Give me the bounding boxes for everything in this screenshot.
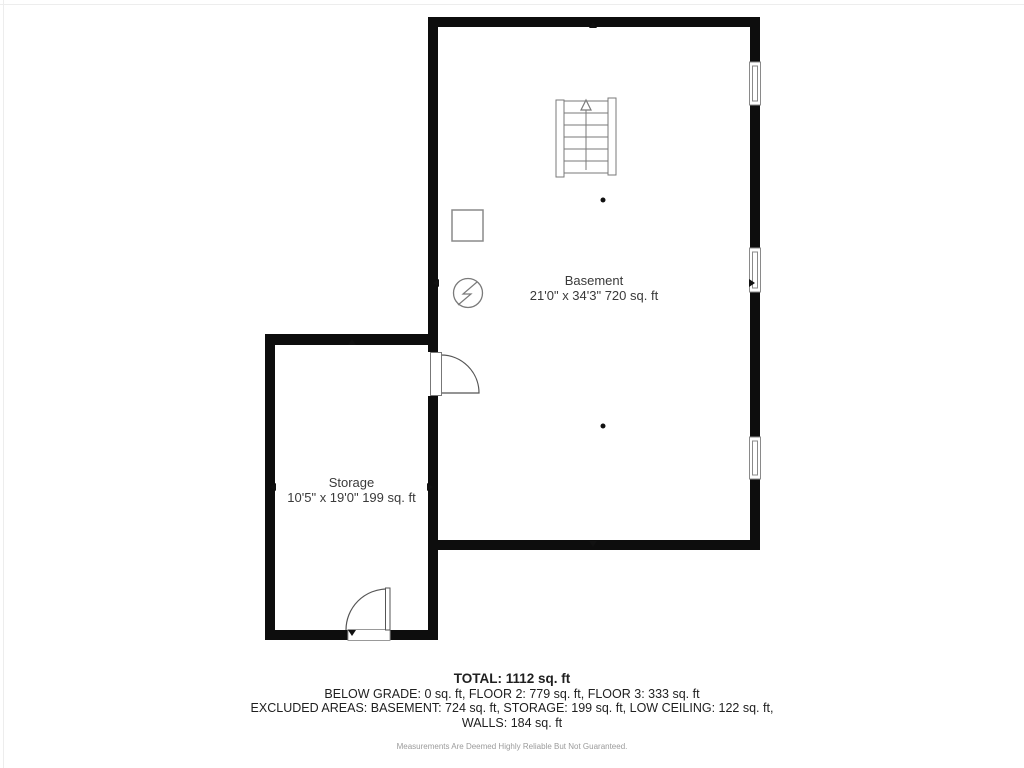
summary-line: BELOW GRADE: 0 sq. ft, FLOOR 2: 779 sq. … [0,687,1024,702]
storage-wall-bottom-seg1 [265,630,348,640]
room-name: Basement [438,273,750,288]
utility-box-icon [452,210,483,241]
basement-wall-left-seg1 [428,17,438,352]
summary-line: WALLS: 184 sq. ft [0,716,1024,731]
door-swing-icon [431,353,480,396]
basement-wall-right-seg3 [750,292,760,437]
scan-point-dot [601,198,606,203]
measurement-disclaimer: Measurements Are Deemed Highly Reliable … [0,742,1024,752]
basement-wall-right-seg1 [750,17,760,62]
floor-plan-drawing [0,0,1024,768]
floor-plan-page: Basement 21'0" x 34'3" 720 sq. ft Storag… [0,0,1024,768]
staircase-up-icon [556,98,616,177]
room-name: Storage [275,475,428,490]
summary-line: EXCLUDED AREAS: BASEMENT: 724 sq. ft, ST… [0,701,1024,716]
window-icon [750,437,761,479]
basement-wall-right-seg4 [750,479,760,550]
total-area-line: TOTAL: 1112 sq. ft [0,672,1024,687]
basement-room-label: Basement 21'0" x 34'3" 720 sq. ft [438,273,750,303]
basement-wall-left-seg2 [428,396,438,640]
storage-wall-bottom-seg2 [390,630,438,640]
basement-wall-right-seg2 [750,105,760,248]
room-dimensions: 10'5" x 19'0" 199 sq. ft [275,490,428,505]
storage-room-label: Storage 10'5" x 19'0" 199 sq. ft [275,475,428,505]
stair-rail-left [556,100,564,177]
room-dimensions: 21'0" x 34'3" 720 sq. ft [438,288,750,303]
stair-rail-right [608,98,616,175]
window-icon [750,62,761,105]
scan-point-dots [601,198,606,429]
scan-point-dot [601,424,606,429]
area-summary: TOTAL: 1112 sq. ft BELOW GRADE: 0 sq. ft… [0,672,1024,731]
